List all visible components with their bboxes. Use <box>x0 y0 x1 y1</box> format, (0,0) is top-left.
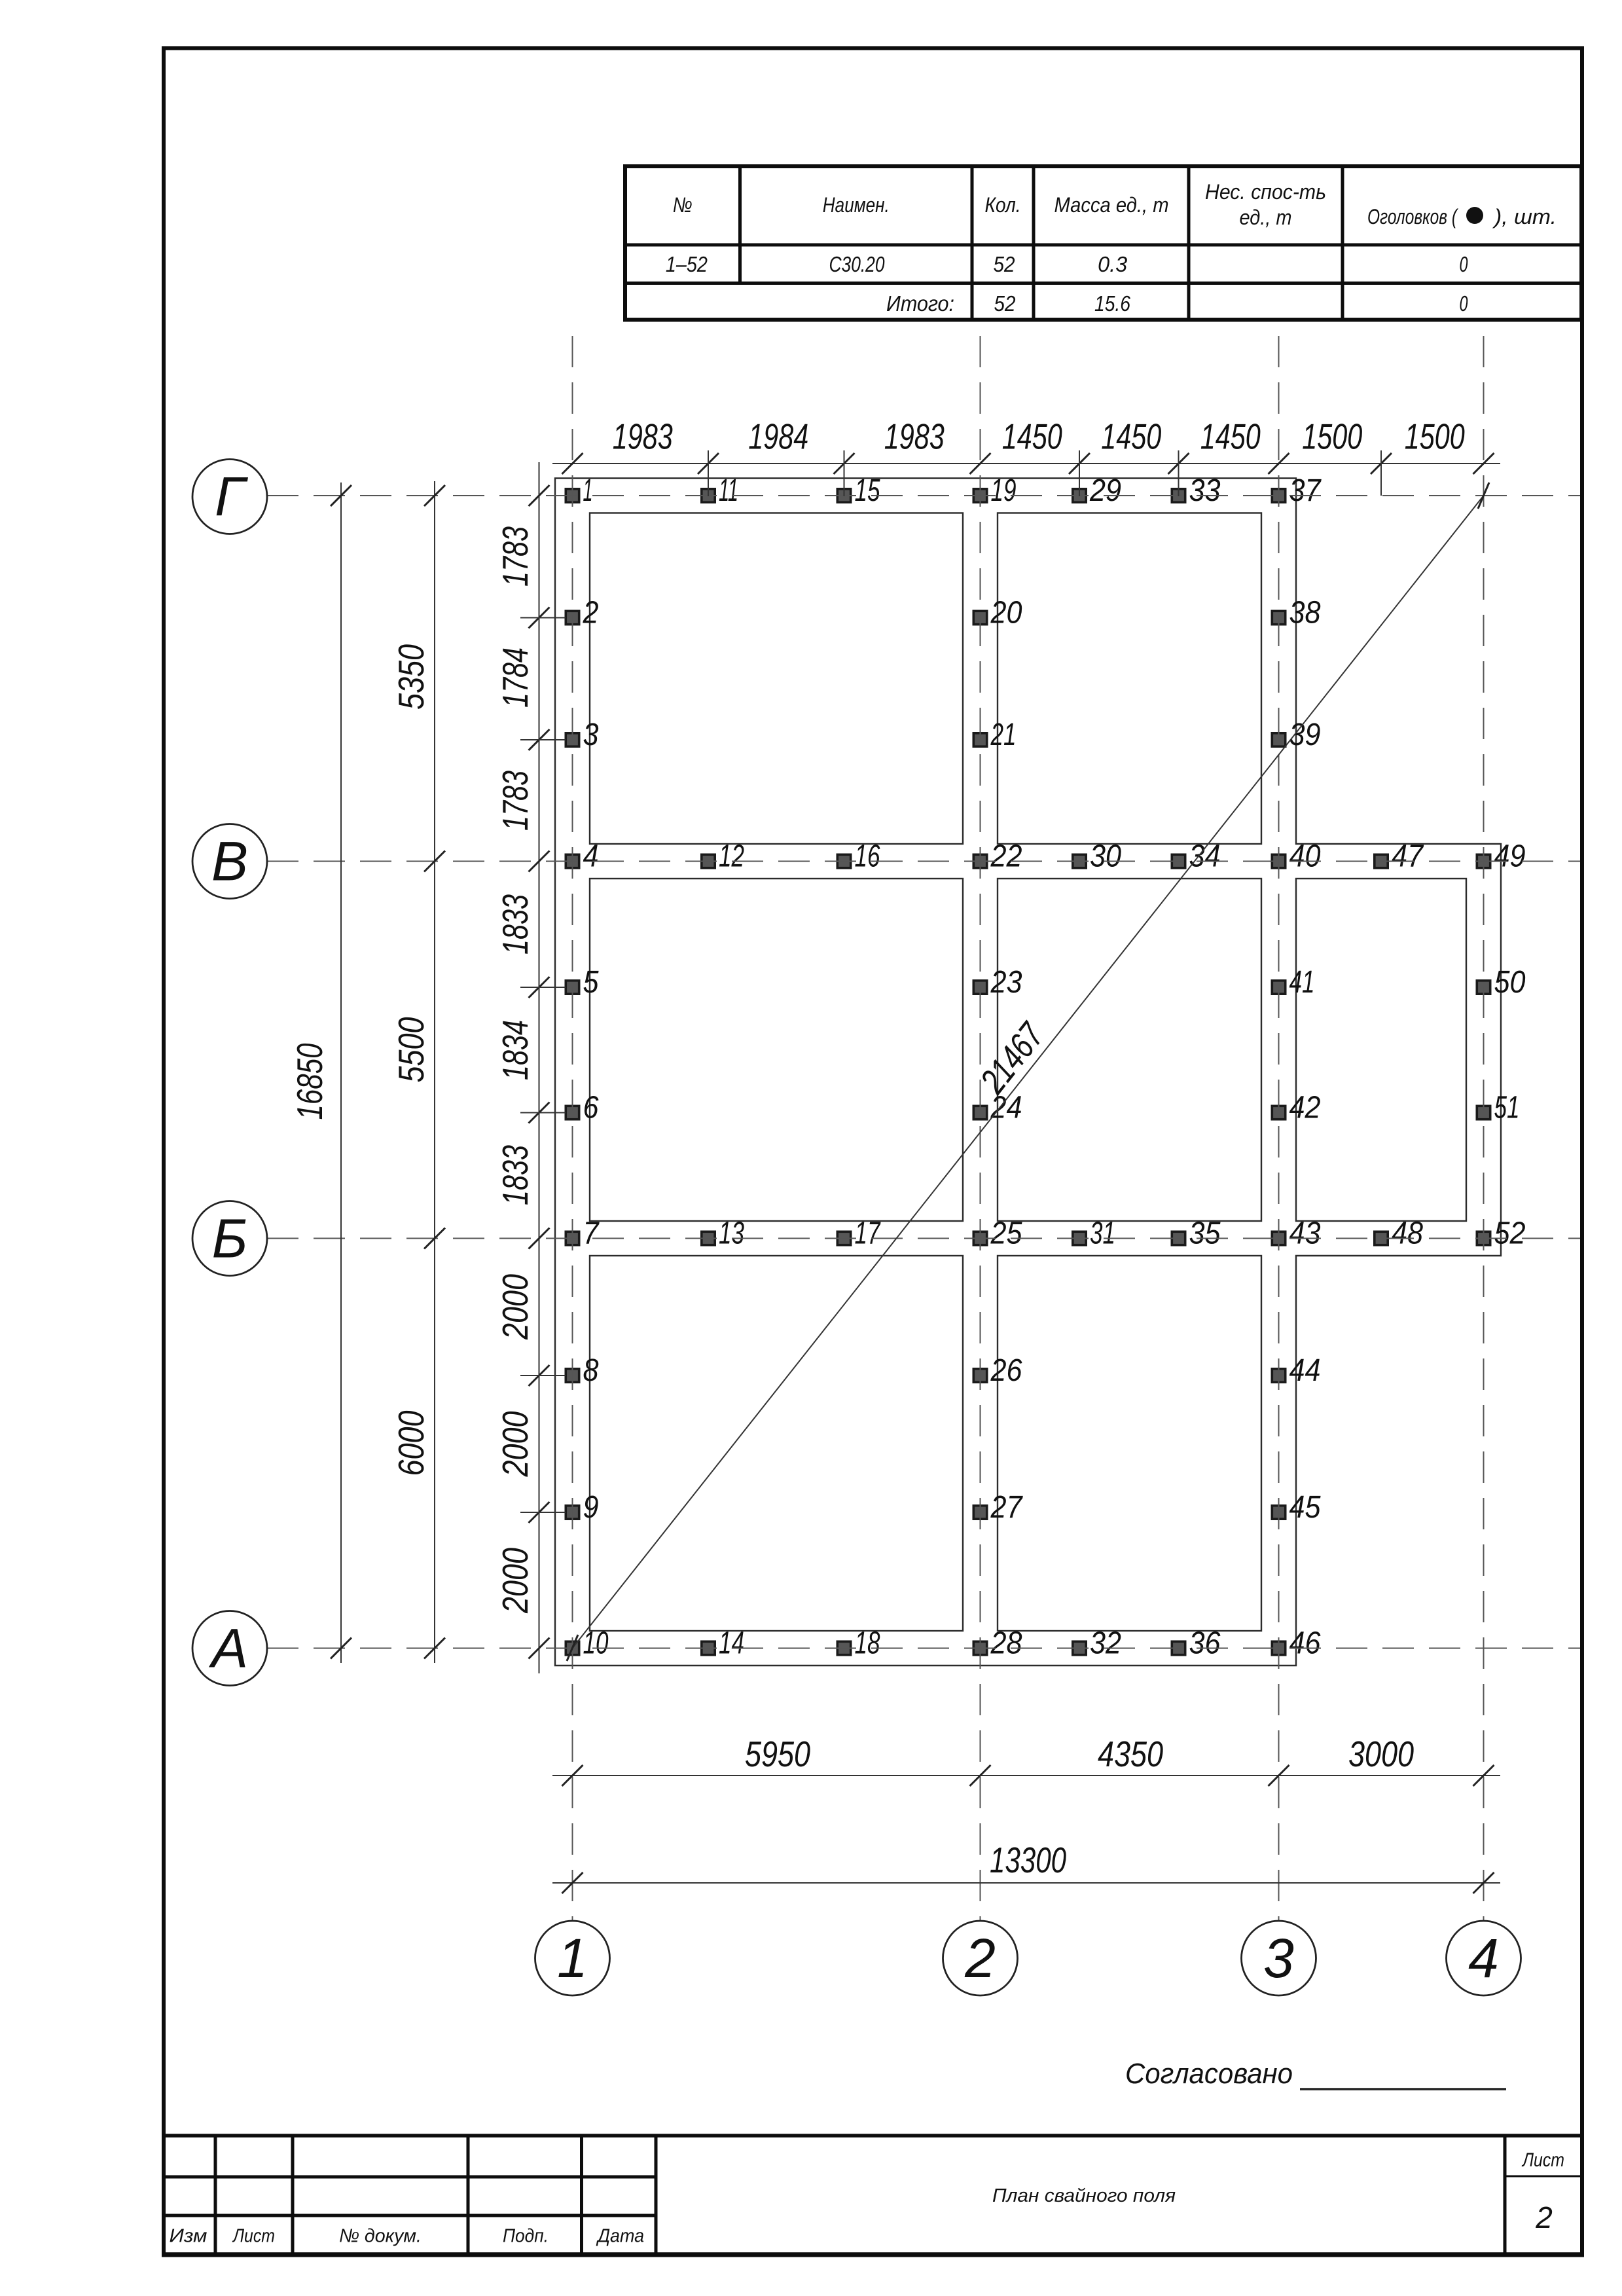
svg-text:16850: 16850 <box>289 1043 330 1120</box>
svg-text:1783: 1783 <box>495 526 535 587</box>
svg-text:Итого:: Итого: <box>886 291 954 316</box>
svg-text:Изм: Изм <box>170 2226 207 2247</box>
svg-text:1983: 1983 <box>884 416 945 457</box>
svg-text:52: 52 <box>994 291 1016 316</box>
svg-text:30: 30 <box>1090 839 1121 874</box>
svg-text:31: 31 <box>1090 1216 1115 1251</box>
svg-text:4350: 4350 <box>1098 1734 1163 1774</box>
svg-text:15: 15 <box>855 473 880 508</box>
svg-text:1833: 1833 <box>495 1145 535 1205</box>
svg-text:3: 3 <box>1263 1927 1294 1989</box>
svg-text:), шт.: ), шт. <box>1492 205 1557 228</box>
svg-text:Масса ед., т: Масса ед., т <box>1054 193 1169 217</box>
svg-text:Г: Г <box>215 466 248 528</box>
svg-text:21: 21 <box>990 718 1017 752</box>
svg-text:Дата: Дата <box>596 2226 644 2247</box>
svg-text:В: В <box>211 831 248 892</box>
svg-text:41: 41 <box>1289 965 1315 1000</box>
svg-text:52: 52 <box>994 252 1015 276</box>
svg-text:48: 48 <box>1392 1216 1423 1251</box>
svg-text:34: 34 <box>1189 839 1221 874</box>
svg-text:0: 0 <box>1460 252 1468 276</box>
svg-text:Согласовано: Согласовано <box>1125 2058 1293 2090</box>
svg-text:3: 3 <box>583 718 599 752</box>
svg-text:Лист: Лист <box>232 2226 275 2247</box>
svg-text:2: 2 <box>1535 2200 1553 2234</box>
svg-text:1: 1 <box>583 473 593 508</box>
svg-text:План свайного поля: План свайного поля <box>992 2185 1176 2206</box>
svg-text:15.6: 15.6 <box>1094 291 1131 316</box>
svg-text:0: 0 <box>1460 291 1468 316</box>
svg-text:46: 46 <box>1289 1626 1321 1661</box>
svg-text:5: 5 <box>583 965 599 1000</box>
svg-text:1984: 1984 <box>748 416 808 457</box>
svg-text:16: 16 <box>855 839 880 874</box>
svg-text:25: 25 <box>990 1216 1022 1251</box>
svg-text:1–52: 1–52 <box>666 252 708 276</box>
svg-text:11: 11 <box>719 473 738 508</box>
svg-text:1450: 1450 <box>1002 416 1062 457</box>
svg-text:28: 28 <box>990 1626 1022 1661</box>
svg-text:37: 37 <box>1289 473 1322 508</box>
svg-text:1983: 1983 <box>613 416 673 457</box>
svg-text:32: 32 <box>1090 1626 1121 1661</box>
svg-text:1450: 1450 <box>1200 416 1261 457</box>
svg-text:ед., т: ед., т <box>1240 206 1292 229</box>
svg-text:9: 9 <box>583 1490 599 1525</box>
svg-text:33: 33 <box>1189 473 1221 508</box>
svg-text:10: 10 <box>583 1626 609 1661</box>
svg-text:27: 27 <box>990 1490 1024 1525</box>
svg-text:2000: 2000 <box>495 1548 535 1614</box>
svg-text:4: 4 <box>1468 1927 1499 1989</box>
svg-text:13300: 13300 <box>990 1840 1066 1880</box>
svg-text:Оголовков (: Оголовков ( <box>1367 205 1458 228</box>
svg-text:5950: 5950 <box>745 1734 810 1774</box>
svg-text:Нес. спос-ть: Нес. спос-ть <box>1205 180 1326 204</box>
svg-text:1834: 1834 <box>495 1020 535 1080</box>
svg-text:Б: Б <box>212 1208 248 1269</box>
svg-text:19: 19 <box>991 473 1017 508</box>
svg-text:6000: 6000 <box>391 1410 431 1476</box>
svg-text:2: 2 <box>964 1927 996 1989</box>
svg-text:40: 40 <box>1289 839 1321 874</box>
svg-text:А: А <box>208 1618 248 1679</box>
svg-text:8: 8 <box>583 1353 599 1388</box>
svg-text:Подп.: Подп. <box>503 2226 549 2247</box>
svg-text:№ докум.: № докум. <box>339 2226 422 2247</box>
svg-text:38: 38 <box>1289 596 1321 630</box>
svg-text:18: 18 <box>855 1626 880 1661</box>
svg-text:50: 50 <box>1494 965 1526 1000</box>
svg-text:20: 20 <box>990 596 1022 630</box>
svg-text:0.3: 0.3 <box>1098 252 1128 276</box>
svg-text:52: 52 <box>1494 1216 1526 1251</box>
svg-text:43: 43 <box>1289 1216 1321 1251</box>
svg-text:47: 47 <box>1392 839 1424 874</box>
svg-text:13: 13 <box>719 1216 744 1251</box>
svg-text:26: 26 <box>990 1353 1022 1388</box>
svg-text:Наимен.: Наимен. <box>823 193 890 217</box>
svg-text:1500: 1500 <box>1405 416 1465 457</box>
svg-text:17: 17 <box>855 1216 882 1251</box>
svg-text:42: 42 <box>1289 1091 1321 1125</box>
svg-text:1500: 1500 <box>1302 416 1362 457</box>
svg-text:2000: 2000 <box>495 1274 535 1340</box>
svg-text:1: 1 <box>557 1927 588 1989</box>
svg-text:Лист: Лист <box>1521 2149 1564 2171</box>
svg-text:45: 45 <box>1289 1490 1321 1525</box>
svg-text:1450: 1450 <box>1101 416 1161 457</box>
svg-text:44: 44 <box>1289 1353 1321 1388</box>
svg-text:3000: 3000 <box>1348 1734 1414 1774</box>
svg-text:1784: 1784 <box>495 647 535 708</box>
svg-text:2: 2 <box>583 596 599 630</box>
svg-text:23: 23 <box>990 965 1022 1000</box>
svg-text:35: 35 <box>1189 1216 1221 1251</box>
svg-text:С30.20: С30.20 <box>829 252 886 276</box>
svg-text:2000: 2000 <box>495 1411 535 1477</box>
svg-text:5350: 5350 <box>391 644 431 710</box>
svg-text:7: 7 <box>583 1216 600 1251</box>
svg-text:14: 14 <box>719 1626 744 1661</box>
svg-text:6: 6 <box>583 1091 599 1125</box>
svg-text:49: 49 <box>1494 839 1526 874</box>
svg-text:12: 12 <box>719 839 744 874</box>
svg-text:1833: 1833 <box>495 894 535 955</box>
svg-text:5500: 5500 <box>391 1017 431 1082</box>
svg-text:36: 36 <box>1189 1626 1221 1661</box>
svg-text:Кол.: Кол. <box>985 193 1021 217</box>
svg-text:1783: 1783 <box>495 771 535 831</box>
svg-text:29: 29 <box>1089 473 1121 508</box>
svg-text:№: № <box>673 193 693 217</box>
svg-text:22: 22 <box>990 839 1022 874</box>
svg-text:51: 51 <box>1494 1091 1520 1125</box>
svg-text:4: 4 <box>583 839 599 874</box>
